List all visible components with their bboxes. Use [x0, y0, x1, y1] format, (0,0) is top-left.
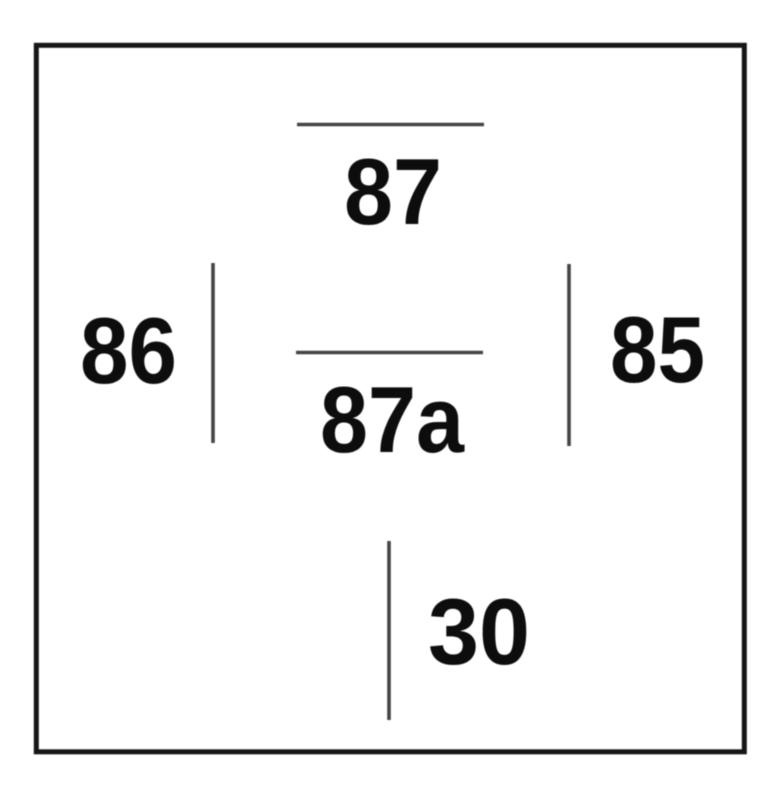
svg-text:87a: 87a	[320, 367, 465, 472]
svg-text:85: 85	[610, 297, 705, 402]
svg-text:30: 30	[428, 579, 530, 684]
svg-text:87: 87	[344, 139, 442, 244]
svg-text:86: 86	[80, 298, 177, 403]
